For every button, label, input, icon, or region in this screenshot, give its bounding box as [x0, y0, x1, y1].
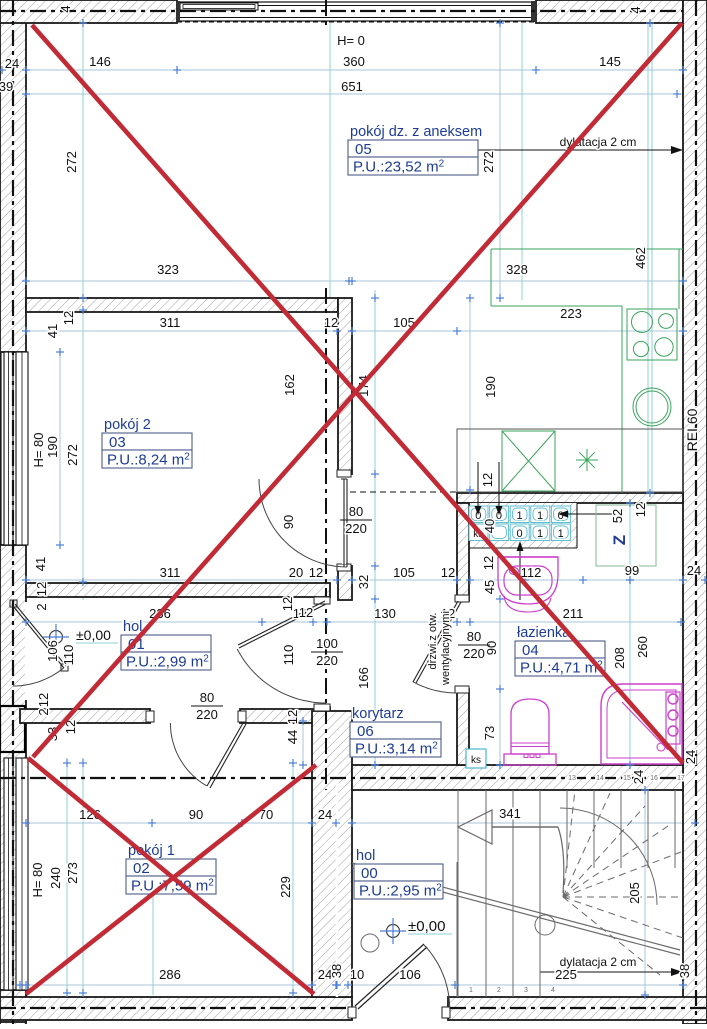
svg-text:4: 4 — [628, 6, 643, 13]
svg-text:0: 0 — [558, 510, 564, 522]
svg-text:99: 99 — [625, 563, 639, 578]
svg-text:REI 60: REI 60 — [684, 408, 700, 451]
svg-text:1: 1 — [537, 528, 543, 540]
svg-text:12: 12 — [324, 315, 338, 330]
svg-text:10: 10 — [350, 967, 364, 982]
svg-text:hol: hol — [123, 619, 142, 635]
svg-text:12: 12 — [285, 710, 300, 724]
svg-text:260: 260 — [635, 636, 650, 658]
svg-text:220: 220 — [316, 653, 338, 668]
svg-text:15: 15 — [623, 775, 631, 782]
svg-text:12: 12 — [480, 473, 495, 487]
svg-text:286: 286 — [159, 967, 181, 982]
svg-text:341: 341 — [499, 806, 521, 821]
svg-text:90: 90 — [189, 807, 203, 822]
svg-text:80: 80 — [349, 504, 363, 519]
svg-text:90: 90 — [484, 641, 499, 655]
svg-text:P.U.:4,71 m2: P.U.:4,71 m2 — [520, 660, 603, 677]
svg-text:462: 462 — [633, 247, 648, 269]
svg-text:40: 40 — [482, 519, 497, 533]
svg-text:272: 272 — [65, 444, 80, 466]
svg-text:105: 105 — [393, 565, 415, 580]
svg-text:272: 272 — [481, 151, 496, 173]
svg-text:H= 0: H= 0 — [337, 33, 365, 48]
svg-text:P.U.:8,24 m2: P.U.:8,24 m2 — [107, 452, 190, 469]
svg-text:ks: ks — [471, 755, 481, 766]
svg-text:273: 273 — [65, 862, 80, 884]
svg-text:24: 24 — [318, 807, 332, 822]
svg-text:190: 190 — [483, 376, 498, 398]
svg-text:12: 12 — [633, 503, 648, 517]
svg-text:220: 220 — [345, 521, 367, 536]
svg-text:146: 146 — [89, 54, 111, 69]
svg-text:drzwi z otw.: drzwi z otw. — [427, 613, 439, 670]
svg-text:220: 220 — [196, 707, 218, 722]
svg-text:106: 106 — [399, 967, 421, 982]
svg-text:38: 38 — [329, 964, 344, 978]
svg-text:P.U.:23,52 m2: P.U.:23,52 m2 — [353, 159, 445, 176]
svg-text:112: 112 — [521, 565, 542, 580]
svg-text:wentylacyjnymi: wentylacyjnymi — [440, 611, 452, 686]
svg-text:205: 205 — [627, 882, 642, 904]
svg-text:220: 220 — [463, 646, 485, 661]
svg-text:04: 04 — [522, 642, 539, 659]
svg-text:38: 38 — [677, 964, 692, 978]
svg-text:24: 24 — [683, 750, 698, 764]
svg-text:pokój dz. z aneksem: pokój dz. z aneksem — [350, 124, 482, 140]
svg-text:162: 162 — [282, 374, 297, 396]
svg-text:Z: Z — [610, 535, 629, 545]
svg-text:00: 00 — [361, 865, 378, 882]
svg-text:229: 229 — [278, 876, 293, 898]
svg-text:±0,00: ±0,00 — [76, 627, 111, 643]
svg-text:41: 41 — [33, 557, 48, 571]
svg-text:110: 110 — [281, 645, 296, 666]
svg-text:P.U.:2,95 m2: P.U.:2,95 m2 — [359, 883, 442, 900]
svg-text:4: 4 — [551, 987, 555, 994]
svg-text:13: 13 — [568, 775, 576, 782]
svg-text:03: 03 — [109, 434, 126, 451]
svg-text:12: 12 — [299, 605, 313, 620]
svg-text:311: 311 — [160, 565, 181, 580]
svg-text:±0,00: ±0,00 — [408, 918, 445, 935]
svg-text:145: 145 — [599, 54, 621, 69]
svg-text:06: 06 — [357, 723, 374, 740]
svg-text:360: 360 — [343, 54, 365, 69]
svg-text:20: 20 — [289, 565, 303, 580]
svg-text:0: 0 — [516, 528, 522, 540]
svg-text:110: 110 — [61, 645, 76, 666]
svg-text:H= 80: H= 80 — [31, 432, 46, 467]
svg-text:hol: hol — [356, 848, 375, 864]
svg-text:311: 311 — [160, 315, 181, 330]
svg-text:12: 12 — [309, 565, 323, 580]
svg-text:2: 2 — [34, 603, 49, 610]
svg-text:1: 1 — [537, 510, 543, 522]
svg-text:328: 328 — [506, 262, 528, 277]
svg-text:12: 12 — [280, 597, 295, 611]
svg-text:166: 166 — [356, 667, 371, 689]
svg-text:24: 24 — [631, 770, 646, 784]
svg-text:2: 2 — [36, 708, 51, 715]
svg-text:323: 323 — [157, 262, 179, 277]
svg-text:272: 272 — [64, 151, 79, 173]
svg-text:2: 2 — [497, 987, 501, 994]
svg-text:1: 1 — [516, 510, 522, 522]
svg-text:225: 225 — [555, 967, 577, 982]
svg-text:106: 106 — [45, 640, 60, 662]
svg-text:12: 12 — [61, 311, 76, 325]
svg-text:1: 1 — [469, 987, 473, 994]
svg-text:12: 12 — [481, 556, 496, 570]
svg-text:240: 240 — [48, 867, 63, 889]
svg-text:24: 24 — [687, 563, 701, 578]
svg-text:16: 16 — [650, 775, 658, 782]
svg-text:651: 651 — [341, 79, 363, 94]
svg-text:12: 12 — [34, 582, 49, 596]
svg-text:130: 130 — [374, 606, 396, 621]
svg-text:223: 223 — [560, 306, 582, 321]
svg-text:12: 12 — [36, 693, 51, 707]
svg-text:24: 24 — [5, 56, 19, 71]
svg-text:P.U.:3,14 m2: P.U.:3,14 m2 — [355, 741, 438, 758]
svg-text:14: 14 — [596, 775, 604, 782]
svg-text:52: 52 — [610, 509, 625, 523]
svg-text:211: 211 — [563, 606, 584, 621]
svg-text:17: 17 — [677, 775, 685, 782]
svg-text:4: 4 — [58, 5, 73, 12]
svg-text:P.U.:2,99 m2: P.U.:2,99 m2 — [126, 654, 209, 671]
svg-text:12: 12 — [441, 565, 455, 580]
svg-text:80: 80 — [200, 690, 214, 705]
svg-text:1: 1 — [558, 528, 564, 540]
svg-text:05: 05 — [355, 141, 372, 158]
svg-text:208: 208 — [612, 647, 627, 669]
svg-text:80: 80 — [467, 629, 481, 644]
svg-text:100: 100 — [316, 636, 338, 651]
svg-text:190: 190 — [45, 436, 60, 458]
svg-text:39: 39 — [0, 79, 13, 94]
svg-text:pokój 2: pokój 2 — [104, 417, 151, 433]
svg-text:44: 44 — [285, 730, 300, 744]
svg-text:02: 02 — [133, 860, 150, 877]
svg-text:73: 73 — [482, 726, 497, 740]
svg-text:45: 45 — [482, 580, 497, 594]
svg-text:90: 90 — [281, 515, 296, 529]
svg-text:korytarz: korytarz — [352, 706, 404, 722]
svg-text:32: 32 — [356, 575, 371, 589]
svg-text:41: 41 — [45, 324, 60, 338]
svg-text:H= 80: H= 80 — [30, 862, 45, 897]
svg-text:3: 3 — [524, 987, 528, 994]
